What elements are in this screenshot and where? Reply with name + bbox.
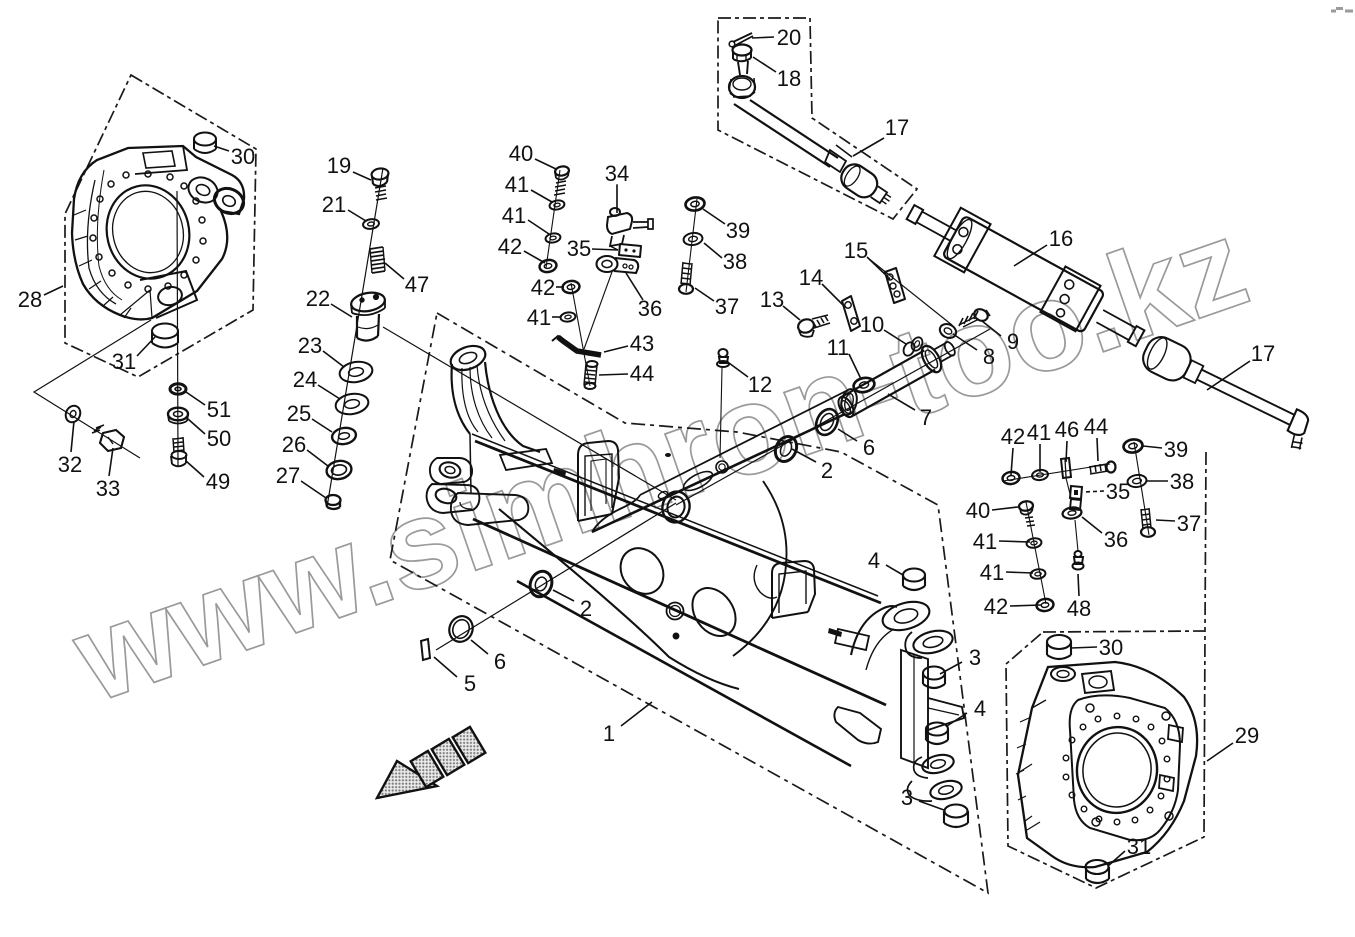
svg-text:11: 11 — [827, 335, 850, 360]
svg-text:30: 30 — [231, 144, 255, 169]
svg-text:48: 48 — [1067, 596, 1091, 621]
svg-text:40: 40 — [509, 141, 533, 166]
svg-text:18: 18 — [777, 66, 801, 91]
svg-text:31: 31 — [112, 349, 136, 374]
svg-text:33: 33 — [96, 476, 120, 501]
svg-text:12: 12 — [748, 372, 772, 397]
svg-text:30: 30 — [1099, 635, 1123, 660]
svg-text:36: 36 — [638, 296, 662, 321]
svg-text:17: 17 — [1251, 341, 1275, 366]
svg-text:50: 50 — [207, 426, 231, 451]
svg-text:21: 21 — [322, 192, 346, 217]
svg-text:51: 51 — [207, 397, 231, 422]
svg-text:39: 39 — [1164, 437, 1188, 462]
svg-text:8: 8 — [983, 344, 995, 369]
svg-text:17: 17 — [885, 115, 909, 140]
svg-text:44: 44 — [630, 361, 654, 386]
svg-text:1: 1 — [603, 721, 615, 746]
svg-text:5: 5 — [464, 671, 476, 696]
svg-text:41: 41 — [973, 529, 997, 554]
svg-text:38: 38 — [1170, 469, 1194, 494]
svg-text:32: 32 — [58, 452, 82, 477]
svg-text:22: 22 — [306, 286, 330, 311]
svg-text:20: 20 — [777, 25, 801, 50]
svg-text:27: 27 — [276, 463, 300, 488]
svg-text:15: 15 — [844, 238, 868, 263]
svg-text:43: 43 — [630, 331, 654, 356]
svg-text:47: 47 — [405, 272, 429, 297]
svg-text:42: 42 — [984, 594, 1008, 619]
svg-text:46: 46 — [1055, 417, 1079, 442]
svg-text:41: 41 — [505, 172, 529, 197]
svg-text:41: 41 — [502, 203, 526, 228]
svg-text:4: 4 — [974, 696, 986, 721]
svg-text:41: 41 — [1027, 420, 1051, 445]
svg-text:19: 19 — [327, 153, 351, 178]
svg-text:34: 34 — [605, 161, 629, 186]
svg-text:37: 37 — [715, 294, 739, 319]
svg-text:38: 38 — [723, 249, 747, 274]
svg-text:6: 6 — [863, 435, 875, 460]
svg-text:28: 28 — [18, 287, 42, 312]
svg-text:44: 44 — [1084, 414, 1108, 439]
svg-text:42: 42 — [531, 275, 555, 300]
svg-text:36: 36 — [1104, 527, 1128, 552]
svg-text:2: 2 — [821, 458, 833, 483]
svg-text:14: 14 — [799, 265, 823, 290]
svg-text:13: 13 — [760, 287, 784, 312]
svg-text:31: 31 — [1127, 834, 1151, 859]
svg-text:25: 25 — [287, 401, 311, 426]
svg-text:3: 3 — [969, 645, 981, 670]
svg-text:41: 41 — [527, 305, 551, 330]
svg-text:39: 39 — [726, 218, 750, 243]
svg-text:40: 40 — [966, 498, 990, 523]
svg-text:4: 4 — [868, 548, 880, 573]
svg-text:2: 2 — [580, 596, 592, 621]
svg-text:9: 9 — [1007, 329, 1019, 354]
svg-text:42: 42 — [498, 234, 522, 259]
svg-text:35: 35 — [567, 236, 591, 261]
svg-text:35: 35 — [1106, 479, 1130, 504]
svg-text:7: 7 — [920, 405, 932, 430]
svg-text:29: 29 — [1235, 723, 1259, 748]
svg-text:10: 10 — [860, 312, 884, 337]
svg-text:49: 49 — [206, 469, 230, 494]
svg-text:41: 41 — [980, 560, 1004, 585]
svg-text:6: 6 — [494, 649, 506, 674]
svg-text:3: 3 — [901, 785, 913, 810]
svg-text:23: 23 — [298, 333, 322, 358]
svg-text:26: 26 — [282, 432, 306, 457]
svg-text:16: 16 — [1049, 226, 1073, 251]
svg-text:37: 37 — [1177, 511, 1201, 536]
svg-text:24: 24 — [293, 367, 317, 392]
svg-text:42: 42 — [1001, 424, 1025, 449]
